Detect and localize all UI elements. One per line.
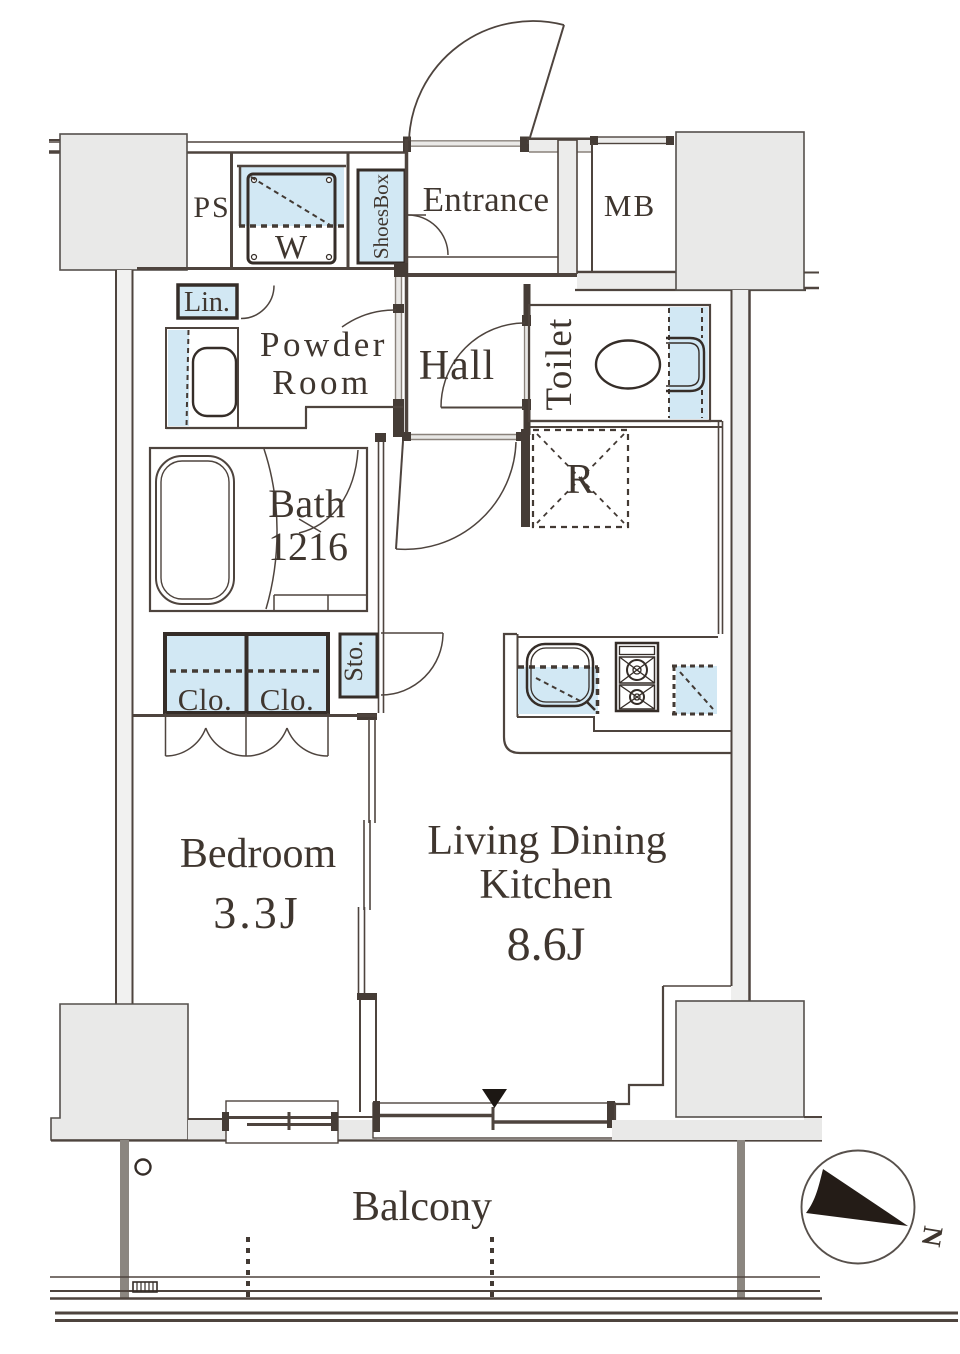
svg-text:Clo.: Clo. <box>260 682 315 717</box>
svg-text:Sto.: Sto. <box>339 640 368 681</box>
svg-text:Powder: Powder <box>260 325 388 364</box>
svg-text:1216: 1216 <box>268 524 348 569</box>
svg-text:Entrance: Entrance <box>423 180 550 219</box>
svg-text:ShoesBox: ShoesBox <box>369 173 393 259</box>
svg-text:Hall: Hall <box>419 343 495 389</box>
svg-text:Bath: Bath <box>268 481 346 526</box>
svg-text:Lin.: Lin. <box>184 287 230 318</box>
svg-text:W: W <box>275 229 308 266</box>
svg-text:Toilet: Toilet <box>539 318 580 411</box>
svg-text:3.3J: 3.3J <box>213 887 300 938</box>
svg-text:Clo.: Clo. <box>178 682 233 717</box>
svg-text:Room: Room <box>272 363 372 402</box>
svg-text:MB: MB <box>604 188 656 223</box>
svg-text:8.6J: 8.6J <box>507 918 586 971</box>
svg-text:Living Dining: Living Dining <box>427 818 666 864</box>
svg-text:PS: PS <box>193 191 230 224</box>
svg-text:Balcony: Balcony <box>352 1184 492 1230</box>
svg-text:R: R <box>566 457 594 503</box>
svg-text:Kitchen: Kitchen <box>480 862 613 908</box>
svg-text:Bedroom: Bedroom <box>180 831 337 877</box>
